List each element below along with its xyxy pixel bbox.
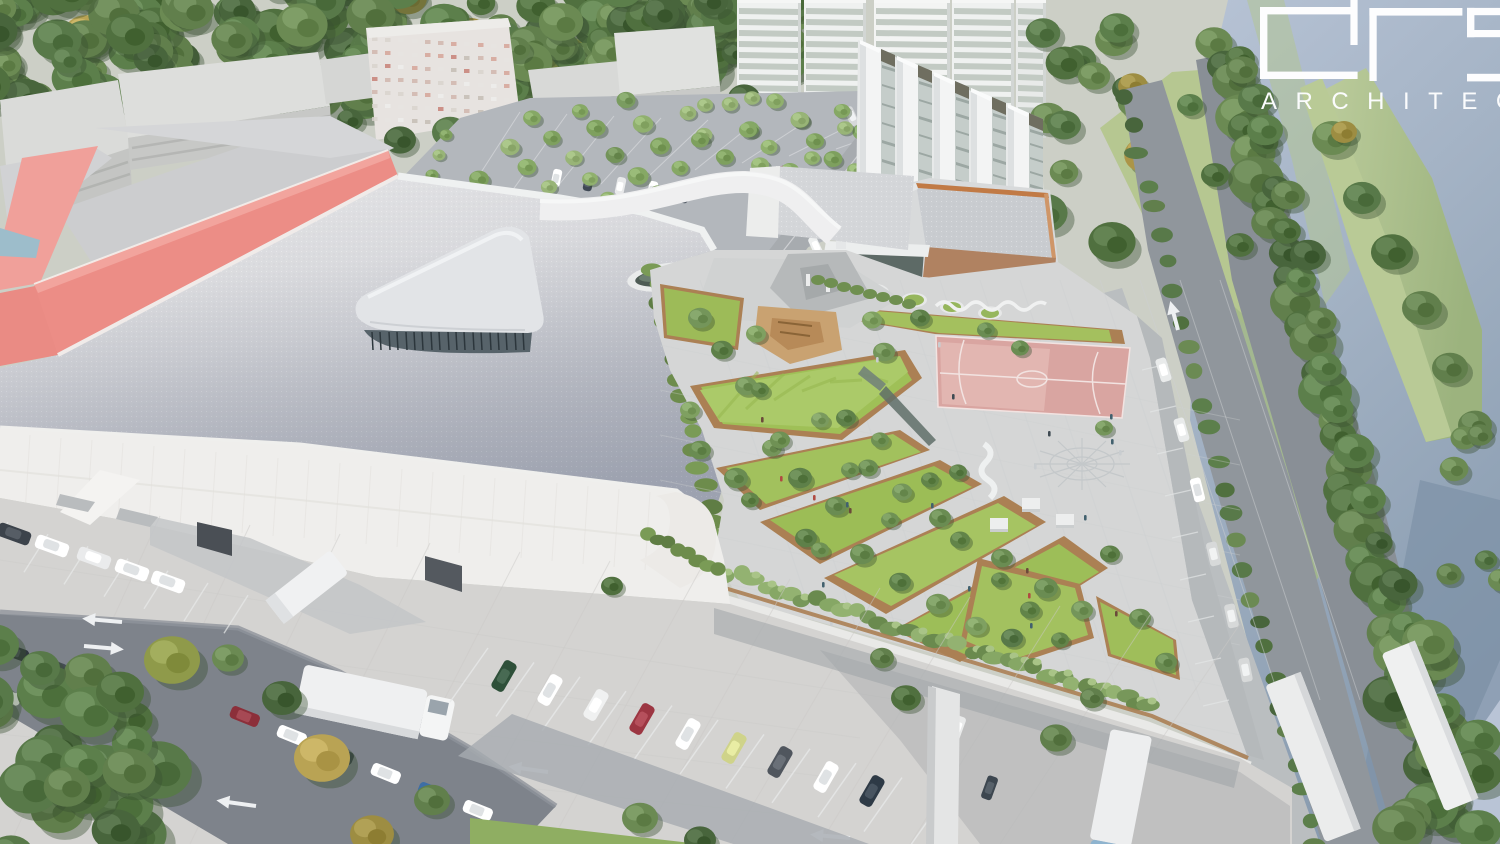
- svg-text:ARCHITEC: ARCHITEC: [1261, 88, 1500, 115]
